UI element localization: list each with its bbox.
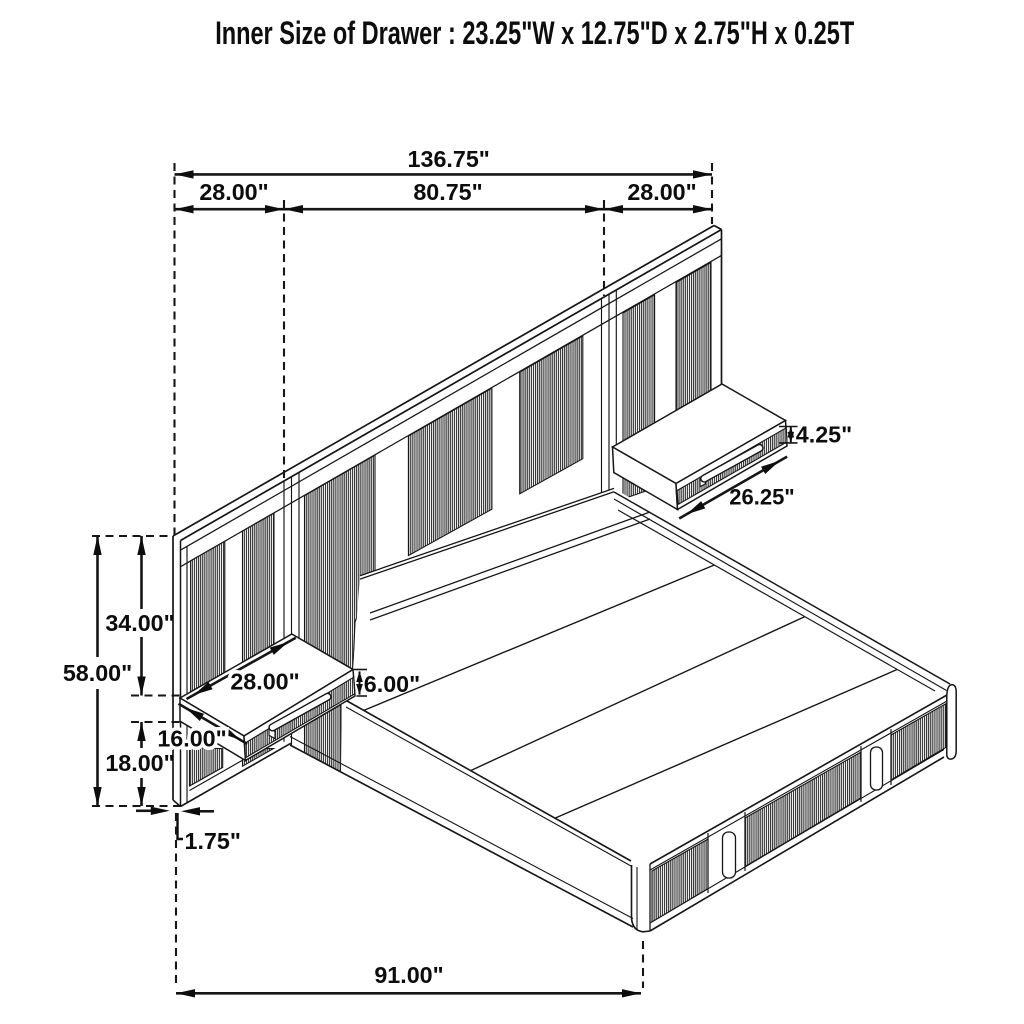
svg-text:136.75": 136.75" bbox=[408, 146, 490, 172]
svg-text:4.25": 4.25" bbox=[796, 422, 852, 448]
svg-text:18.00": 18.00" bbox=[105, 750, 174, 776]
svg-text:6.00": 6.00" bbox=[364, 671, 420, 697]
svg-text:28.00": 28.00" bbox=[230, 669, 299, 695]
svg-text:28.00": 28.00" bbox=[199, 179, 268, 205]
svg-text:58.00": 58.00" bbox=[63, 660, 132, 686]
svg-text:91.00": 91.00" bbox=[374, 962, 443, 988]
svg-text:Inner Size of Drawer : 23.25"W: Inner Size of Drawer : 23.25"W x 12.75"D… bbox=[215, 15, 854, 51]
svg-text:16.00": 16.00" bbox=[157, 726, 226, 752]
svg-text:26.25": 26.25" bbox=[729, 485, 794, 510]
svg-text:28.00": 28.00" bbox=[627, 179, 696, 205]
svg-text:34.00": 34.00" bbox=[105, 610, 174, 636]
svg-text:1.75": 1.75" bbox=[185, 828, 241, 854]
svg-text:80.75": 80.75" bbox=[413, 179, 482, 205]
